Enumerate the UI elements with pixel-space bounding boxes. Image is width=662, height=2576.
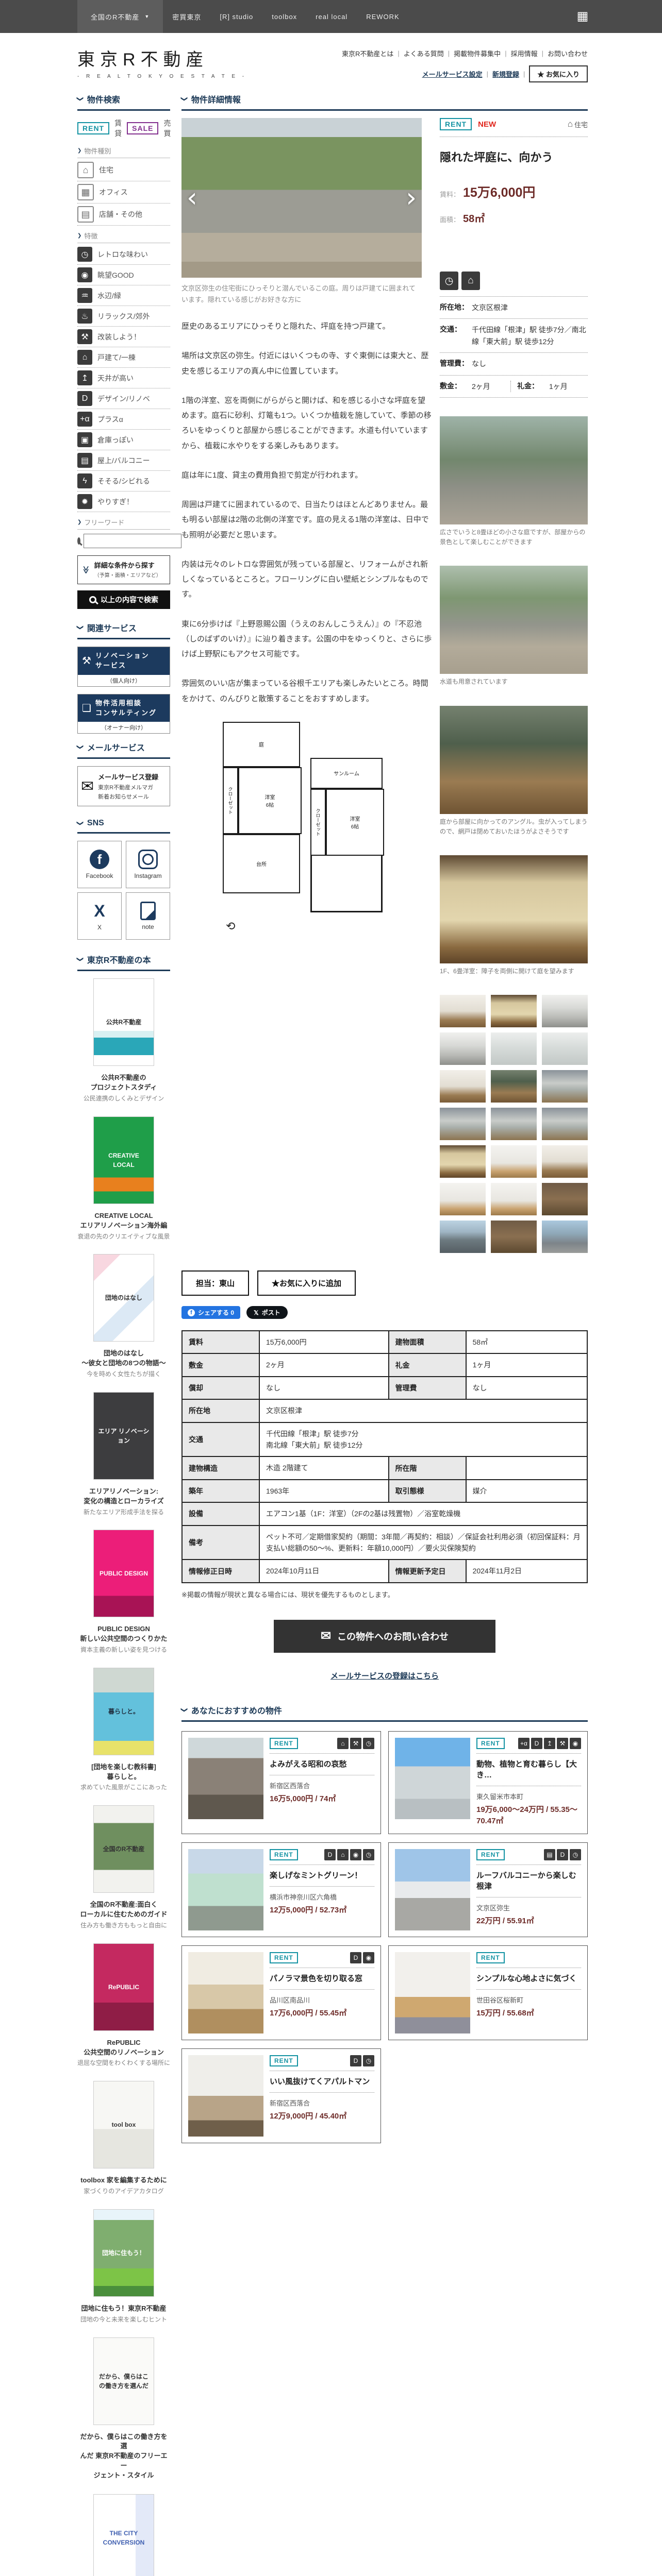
feature-icon: ⌂: [337, 1738, 349, 1749]
global-nav-items: 密買東京[R] studiotoolboxreal localREWORK: [163, 0, 408, 33]
table-header-cell: 礼金: [389, 1353, 466, 1376]
compass-icon: ⟲: [226, 920, 235, 933]
table-row: 敷金2ヶ月礼金1ヶ月: [182, 1353, 587, 1376]
book-title: ジェント・スタイル: [77, 2471, 170, 2481]
table-row: 賃料15万6,000円建物面積58㎡: [182, 1331, 587, 1353]
sidebar-item-feature[interactable]: ⌂戸建て/一棟: [77, 347, 170, 368]
table-row: 築年1963年取引態様媒介: [182, 1480, 587, 1502]
table-header-cell: 情報更新予定日: [389, 1560, 466, 1582]
book-subtitle: 住み方も働き方ももっと自由に: [77, 1921, 170, 1930]
recommended-cards: RENT⌂⚒◷よみがえる昭和の哀愁新宿区西落合16万5,000円 / 74㎡RE…: [181, 1731, 588, 2143]
feature-icon: ↥: [544, 1738, 555, 1749]
book-title: 変化の構造とローカライズ: [77, 1497, 170, 1506]
building-icon: ▤: [77, 206, 94, 223]
book-title: だから、僕らはこの働き方を選: [77, 2432, 170, 2452]
property-price: 17万6,000円 / 55.45㎡: [270, 2008, 374, 2020]
book-cover[interactable]: 全国のR不動産: [93, 1805, 154, 1893]
nav-all-r-fudosan[interactable]: 全国のR不動産 ▼: [77, 0, 163, 33]
related-services-header[interactable]: ❯ 関連サービス: [77, 621, 170, 639]
area-value: 58㎡: [463, 210, 485, 225]
book-cover[interactable]: だから、僕らはこの働き方を選んだ: [93, 2337, 154, 2425]
key-money-value: 1ヶ月: [549, 381, 568, 392]
recommended-property-card[interactable]: RENT▤D◷ルーフバルコニーから楽しむ根津文京区弥生22万円 / 55.91㎡: [388, 1842, 588, 1937]
link-separator: |: [448, 49, 450, 57]
feature-icon: ◉: [77, 267, 92, 282]
gallery-card: 1F、6畳洋室：障子を両側に開けて庭を望みます: [440, 855, 588, 976]
header-links: 東京R不動産とは|よくある質問|掲載物件募集中|採用情報|お問い合わせ: [342, 48, 588, 58]
book-cover[interactable]: tool box: [93, 2081, 154, 2168]
property-info-rows: 所在地：文京区根津交通：千代田線「根津」駅 徒歩7分／南北線「東大前」駅 徒歩1…: [440, 296, 588, 375]
description-paragraph: 内装は元々のレトロな雰囲気が残っている部屋と、リフォームがされ新しくなっていると…: [181, 557, 432, 602]
book-title: エリアリノベーション海外編: [77, 1221, 170, 1231]
nav-item[interactable]: REWORK: [357, 0, 409, 33]
sidebar-item-type[interactable]: ▦オフィス: [77, 181, 170, 204]
property-photo: [395, 1952, 470, 2033]
search-button[interactable]: 以上の内容で検索: [77, 590, 170, 609]
property-photo: [188, 1849, 263, 1930]
facebook-share-button[interactable]: f シェアする 0: [181, 1306, 240, 1319]
book-title: プロジェクトスタディ: [77, 1083, 170, 1093]
price-value: 15万6,000円: [463, 182, 535, 201]
book-title: [団地を楽しむ教科書]: [77, 1762, 170, 1772]
sidebar-item-feature[interactable]: ◷レトロな味わい: [77, 244, 170, 265]
plan-room-label: 洋室 6帖: [326, 789, 384, 856]
book-subtitle: 衰退の先のクリエイティブな風景: [77, 1232, 170, 1241]
property-title: よみがえる昭和の哀愁: [270, 1759, 374, 1775]
sidebar-item-feature[interactable]: Dデザイン/リノベ: [77, 388, 170, 409]
feature-icon: ◷: [570, 1849, 581, 1860]
house-icon: ⌂: [568, 119, 573, 129]
photo-thumbnail[interactable]: [542, 1183, 588, 1215]
property-price: 12万5,000円 / 52.73㎡: [270, 1905, 374, 1917]
sns-link-ig[interactable]: Instagram: [126, 841, 170, 888]
book-item: CREATIVE LOCALCREATIVE LOCALエリアリノベーション海外…: [77, 1116, 170, 1241]
rent-badge: RENT: [270, 1738, 298, 1749]
sidebar-item-label: 戸建て/一棟: [97, 352, 136, 363]
main-content: ❯ 物件詳細情報 ‹ › 文京区弥生の住宅街にひっそりと潜んでいるこの庭。周りは…: [181, 93, 588, 2143]
property-title: パノラマ景色を切り取る窓: [270, 1973, 374, 1990]
table-value-cell: 媒介: [466, 1480, 587, 1502]
property-price: 16万5,000円 / 74㎡: [270, 1793, 374, 1805]
nav-item[interactable]: toolbox: [262, 0, 306, 33]
rent-label: 賃貸: [114, 118, 122, 139]
property-photo: [395, 1849, 470, 1930]
sidebar-item-feature[interactable]: ♨リラックス/郊外: [77, 306, 170, 327]
table-header-cell: 償却: [182, 1377, 259, 1399]
book-cover[interactable]: 団地のはなし: [93, 1254, 154, 1342]
sidebar-item-label: レトロな味わい: [97, 249, 148, 260]
card-feature-icons: D⌂◉◷: [324, 1849, 374, 1860]
sidebar-item-feature[interactable]: ▣倉庫っぽい: [77, 430, 170, 450]
recommended-property-card[interactable]: RENTD◉パノラマ景色を切り取る窓品川区南品川17万6,000円 / 55.4…: [181, 1945, 381, 2040]
card-top: RENT: [476, 1952, 581, 1968]
property-type-header: ❯ 物件種別: [77, 146, 170, 158]
book-title: 団地に住もう！東京R不動産: [77, 2304, 170, 2314]
mail-service-link[interactable]: メールサービスの登録はこちら: [181, 1670, 588, 1681]
consulting-service-banner[interactable]: ❏ 物件活用相談 コンサルティング （オーナー向け）: [77, 694, 170, 734]
header-link[interactable]: 採用情報: [511, 48, 538, 58]
property-photo: [188, 2055, 263, 2137]
table-header-cell: 所在地: [182, 1399, 259, 1422]
recommended-property-card[interactable]: RENT+αD↥⚒◉動物、植物と育む暮らし【大き…東久留米市本町19万6,000…: [388, 1731, 588, 1834]
book-cover[interactable]: CREATIVE LOCAL: [93, 1116, 154, 1204]
x-icon: X: [90, 901, 109, 921]
search-icon: [77, 537, 80, 545]
rent-toggle[interactable]: RENT: [77, 122, 109, 134]
book-cover[interactable]: PUBLIC DESIGN: [93, 1530, 154, 1617]
deposit-label: 敷金：: [440, 381, 472, 392]
fb-icon: f: [90, 850, 109, 869]
nav-item[interactable]: [R] studio: [210, 0, 262, 33]
table-header-cell: 敷金: [182, 1353, 259, 1376]
property-detail-header: ❯ 物件詳細情報: [181, 93, 588, 111]
table-header-cell: 交通: [182, 1422, 259, 1457]
gallery-caption: 広さでいうと8畳ほどの小さな庭ですが、部屋からの景色として楽しむことができます: [440, 528, 588, 547]
sidebar-item-feature[interactable]: +αプラスα: [77, 409, 170, 430]
card-feature-icons: D◉: [350, 1952, 374, 1963]
description-paragraph: 1階の洋室、窓を両側にがらがらと開けば、和を感じる小さな坪庭を望めます。庭石に砂…: [181, 393, 432, 453]
gallery-card: 水道も用意されています: [440, 566, 588, 687]
books-header[interactable]: ❯ 東京R不動産の本: [77, 953, 170, 971]
feature-icon: ▣: [77, 432, 92, 447]
table-value-cell: なし: [466, 1377, 587, 1399]
sidebar-item-label: オフィス: [99, 187, 128, 197]
deposit-value: 2ヶ月: [472, 381, 490, 392]
site-logo-subtext: - R E A L T O K Y O E S T A T E -: [77, 74, 247, 79]
photo-thumbnail[interactable]: [491, 1108, 537, 1140]
description-paragraph: 雰囲気のいい店が集まっている谷根千エリアも楽しみたいところ。時間をかけて、のんび…: [181, 676, 432, 706]
rent-badge: RENT: [270, 1952, 298, 1963]
chevron-down-icon: ❯: [180, 96, 188, 102]
sns-label: Instagram: [134, 872, 161, 879]
table-value-cell: 2ヶ月: [259, 1353, 389, 1376]
photo-thumbnail[interactable]: [491, 1145, 537, 1178]
facebook-icon: f: [188, 1309, 195, 1316]
envelope-icon: ✉: [321, 1629, 331, 1643]
table-row: 償却なし管理費なし: [182, 1377, 587, 1399]
detailed-search-button[interactable]: ≫ 詳細な条件から探す （予算・面積・エリアなど）: [77, 555, 170, 584]
feature-icon: ◷: [363, 1849, 374, 1860]
plan-garden-label: 庭: [223, 722, 300, 767]
floor-plan-2f: サンルーム クローゼット 洋室 6帖: [310, 758, 383, 912]
sidebar-item-label: 改装しよう！: [97, 332, 141, 342]
property-title: シンプルな心地よさに気づく: [476, 1973, 581, 1990]
info-value: 千代田線「根津」駅 徒歩7分／南北線「東大前」駅 徒歩12分: [472, 324, 588, 347]
recommended-property-card[interactable]: RENTD◷いい風抜けてくアパルトマン新宿区西落合12万9,000円 / 45.…: [181, 2048, 381, 2143]
book-cover[interactable]: 団地に住もう！: [93, 2209, 154, 2297]
feature-icon: D: [350, 2055, 361, 2066]
property-location: 東久留米市本町: [476, 1791, 581, 1801]
property-photo: [188, 1952, 263, 2033]
table-row: 交通千代田線「根津」駅 徒歩7分 南北線「東大前」駅 徒歩12分: [182, 1422, 587, 1457]
gallery-photo[interactable]: [440, 416, 588, 524]
property-price: 15万円 / 55.68㎡: [476, 2008, 581, 2020]
chevron-down-icon: ❯: [180, 1707, 188, 1713]
photo-thumbnail[interactable]: [491, 1183, 537, 1215]
card-body: RENT▤D◷ルーフバルコニーから楽しむ根津文京区弥生22万円 / 55.91㎡: [476, 1849, 581, 1930]
photo-thumbnail[interactable]: [542, 1108, 588, 1140]
apps-grid-icon[interactable]: ▦: [575, 9, 590, 24]
floor-plan-1f: 庭 クローゼット 洋室 6帖 台所: [223, 722, 300, 892]
search-icon: [89, 596, 96, 603]
property-title: 隠れた坪庭に、向かう: [440, 148, 588, 165]
gallery-photo[interactable]: [440, 566, 588, 674]
freeword-input[interactable]: [84, 534, 181, 548]
photo-gallery: 広さでいうと8畳ほどの小さな庭ですが、部屋からの景色として楽しむことができます水…: [440, 416, 588, 976]
feature-icon: +α: [77, 412, 92, 427]
photo-thumbnail[interactable]: [542, 1032, 588, 1065]
photo-thumbnail[interactable]: [542, 1145, 588, 1178]
book-cover[interactable]: 公共R不動産: [93, 978, 154, 1066]
book-item: 公共R不動産公共R不動産のプロジェクトスタディ公民連携のしくみとデザイン: [77, 978, 170, 1103]
photo-thumbnail[interactable]: [440, 1183, 486, 1215]
photo-thumbnail[interactable]: [491, 1032, 537, 1065]
photo-caption: 文京区弥生の住宅街にひっそりと潜んでいるこの庭。周りは戸建てに囲まれています。隠…: [181, 283, 422, 306]
gallery-photo[interactable]: [440, 706, 588, 814]
card-body: RENTシンプルな心地よさに気づく世田谷区桜新町15万円 / 55.68㎡: [476, 1952, 581, 2033]
chevron-down-icon: ❯: [76, 957, 84, 962]
property-location: 横浜市神奈川区六角橋: [270, 1892, 374, 1902]
book-subtitle: 新たなエリア形成手法を探る: [77, 1508, 170, 1517]
plan-closet-label: クローゼット: [310, 789, 326, 856]
description-paragraph: 歴史のあるエリアにひっそりと隠れた、坪庭を持つ戸建て。: [181, 319, 432, 334]
sidebar-item-label: 倉庫っぽい: [97, 435, 134, 445]
card-body: RENT⌂⚒◷よみがえる昭和の哀愁新宿区西落合16万5,000円 / 74㎡: [270, 1738, 374, 1827]
feature-icon: D: [350, 1952, 361, 1963]
link-separator: |: [505, 49, 506, 57]
header-link[interactable]: お問い合わせ: [548, 48, 588, 58]
add-favorite-button[interactable]: ★お気に入りに追加: [257, 1270, 356, 1296]
photo-thumbnail[interactable]: [542, 995, 588, 1027]
book-title: RePUBLIC: [77, 2038, 170, 2048]
sidebar-item-label: 水辺/緑: [97, 291, 121, 301]
photo-thumbnail[interactable]: [440, 1108, 486, 1140]
photo-thumbnail[interactable]: [440, 1145, 486, 1178]
feature-icon: ⌂: [461, 272, 480, 290]
table-row: 備考ペット不可／定期借家契約（期間：3年間／再契約：相談）／保証会社利用必須（初…: [182, 1526, 587, 1560]
card-top: RENTD◉: [270, 1952, 374, 1968]
contact-button[interactable]: ✉ この物件へのお問い合わせ: [274, 1620, 495, 1653]
table-value-cell: 1ヶ月: [466, 1353, 587, 1376]
sns-link-note[interactable]: note: [126, 892, 170, 940]
agent-button[interactable]: 担当：東山: [181, 1270, 249, 1296]
nav-item[interactable]: real local: [306, 0, 357, 33]
key-money-label: 礼金：: [517, 381, 549, 392]
photo-thumbnail[interactable]: [440, 1070, 486, 1103]
book-title: 公共R不動産の: [77, 1073, 170, 1083]
drill-icon: ⚒: [82, 654, 91, 667]
sns-link-x[interactable]: XX: [77, 892, 122, 940]
sidebar-item-feature[interactable]: ♒水辺/緑: [77, 285, 170, 306]
feature-icon: ◉: [363, 1952, 374, 1963]
header-user-links: メールサービス設定|新規登録|★ お気に入り: [342, 65, 588, 82]
main-property-photo[interactable]: ‹ ›: [181, 118, 422, 278]
table-value-cell: なし: [259, 1377, 389, 1399]
sns-label: note: [142, 923, 154, 930]
sidebar-item-type[interactable]: ⌂住宅: [77, 159, 170, 181]
freeword-header: ❯ フリーワード: [77, 517, 170, 530]
chevron-right-icon: ❯: [77, 233, 81, 239]
link-separator: |: [542, 49, 543, 57]
feature-icon: ⌂: [337, 1849, 349, 1860]
photo-thumbnail[interactable]: [440, 1221, 486, 1253]
card-body: RENT+αD↥⚒◉動物、植物と育む暮らし【大き…東久留米市本町19万6,000…: [476, 1738, 581, 1827]
feature-icon: ⚒: [557, 1738, 568, 1749]
chevron-down-icon: ❯: [76, 96, 84, 102]
book-item: RePUBLICRePUBLIC公共空間のリノベーション退屈な空間をわくわくする…: [77, 1943, 170, 2067]
book-cover[interactable]: RePUBLIC: [93, 1943, 154, 2031]
property-location: 新宿区西落合: [270, 1781, 374, 1790]
sns-label: Facebook: [86, 872, 113, 879]
book-title: 全国のR不動産:面白く: [77, 1900, 170, 1910]
book-title: CREATIVE LOCAL: [77, 1211, 170, 1221]
photo-thumbnail[interactable]: [542, 1070, 588, 1103]
book-item: 全国のR不動産全国のR不動産:面白くローカルに住むためのガイド住み方も働き方もも…: [77, 1805, 170, 1929]
sidebar-item-label: 眺望GOOD: [97, 270, 134, 280]
photo-thumbnail[interactable]: [491, 995, 537, 1027]
plan-room-label: 洋室 6帖: [238, 767, 302, 834]
mail-register-banner[interactable]: ✉ メールサービス登録 東京R不動産メルマガ 新着お知らせメール: [77, 766, 170, 806]
recommended-header: ❯ あなたにおすすめの物件: [181, 1704, 588, 1722]
table-value-cell: 木造 2階建て: [259, 1456, 389, 1479]
building-icon: ▦: [77, 184, 94, 200]
sidebar-item-label: 店舗・その他: [99, 209, 142, 219]
sidebar-item-feature[interactable]: ↥天井が高い: [77, 368, 170, 388]
next-photo-arrow[interactable]: ›: [406, 184, 417, 211]
book-item: 団地のはなし団地のはなし〜彼女と団地の8つの物語〜今を時めく女性たちが描く: [77, 1254, 170, 1378]
feature-icon: ⌂: [77, 350, 92, 365]
property-title: いい風抜けてくアパルトマン: [270, 2076, 374, 2093]
book-list: 公共R不動産公共R不動産のプロジェクトスタディ公民連携のしくみとデザインCREA…: [77, 978, 170, 2576]
table-value-cell: [466, 1456, 587, 1479]
book-title: 暮らしと。: [77, 1772, 170, 1782]
sidebar-item-feature[interactable]: ϟそそる/シビれる: [77, 471, 170, 492]
photo-thumbnail[interactable]: [440, 995, 486, 1027]
recommended-property-card[interactable]: RENTD⌂◉◷楽しげなミントグリーン！横浜市神奈川区六角橋12万5,000円 …: [181, 1842, 381, 1937]
x-post-button[interactable]: 𝕏 ポスト: [246, 1306, 288, 1319]
gallery-photo[interactable]: [440, 855, 588, 963]
prev-photo-arrow[interactable]: ‹: [187, 184, 197, 211]
feature-icon: D: [324, 1849, 336, 1860]
feature-icon: ◷: [363, 1738, 374, 1749]
rent-badge: RENT: [476, 1952, 505, 1963]
book-cover[interactable]: 暮らしと。: [93, 1668, 154, 1755]
recommended-property-card[interactable]: RENTシンプルな心地よさに気づく世田谷区桜新町15万円 / 55.68㎡: [388, 1945, 588, 2040]
sale-toggle[interactable]: SALE: [127, 122, 158, 134]
book-cover[interactable]: THE CITY CONVERSION: [93, 2494, 154, 2576]
book-item: エリア リノベーションエリアリノベーション:変化の構造とローカライズ新たなエリア…: [77, 1392, 170, 1516]
header-link[interactable]: メールサービス設定: [422, 69, 483, 79]
table-header-cell: 設備: [182, 1502, 259, 1525]
sidebar-search-header[interactable]: ❯ 物件検索: [77, 93, 170, 111]
thumbnail-grid: [440, 995, 588, 1253]
card-body: RENTD⌂◉◷楽しげなミントグリーン！横浜市神奈川区六角橋12万5,000円 …: [270, 1849, 374, 1930]
header-link[interactable]: よくある質問: [404, 48, 444, 58]
property-photo: [188, 1738, 263, 1819]
card-body: RENTD◉パノラマ景色を切り取る窓品川区南品川17万6,000円 / 55.4…: [270, 1952, 374, 2033]
book-title: んだ 東京R不動産のフリーエー: [77, 2451, 170, 2471]
mail-service-header[interactable]: ❯ メールサービス: [77, 741, 170, 759]
plan-closet-label: クローゼット: [223, 767, 238, 834]
header-link[interactable]: 東京R不動産とは: [342, 48, 393, 58]
book-subtitle: 今を時めく女性たちが描く: [77, 1370, 170, 1379]
recommended-property-card[interactable]: RENT⌂⚒◷よみがえる昭和の哀愁新宿区西落合16万5,000円 / 74㎡: [181, 1731, 381, 1834]
card-feature-icons: ▤D◷: [544, 1849, 581, 1860]
property-photo: [395, 1738, 470, 1819]
ig-icon: [138, 850, 158, 869]
site-logo[interactable]: 東京R不動産 - R E A L T O K Y O E S T A T E -: [77, 45, 247, 79]
table-value-cell: 1963年: [259, 1480, 389, 1502]
info-value: 文京区根津: [472, 302, 508, 313]
chevron-down-icon: ❯: [76, 625, 84, 631]
info-label: 交通：: [440, 324, 472, 347]
new-tag: NEW: [478, 120, 496, 129]
sns-header[interactable]: ❯ SNS: [77, 819, 170, 834]
feature-icon: ◉: [350, 1849, 361, 1860]
property-location: 世田谷区桜新町: [476, 1995, 581, 2005]
feature-icon: ♒: [77, 288, 92, 303]
book-item: PUBLIC DESIGNPUBLIC DESIGN新しい公共空間のつくりかた資…: [77, 1530, 170, 1654]
favorites-button[interactable]: ★ お気に入り: [529, 65, 588, 82]
renovation-service-banner[interactable]: ⚒ リノベーション サービス （個人向け）: [77, 647, 170, 687]
book-subtitle: 求めていた風景がここにあった: [77, 1783, 170, 1792]
sidebar-item-label: 屋上/バルコニー: [97, 455, 150, 466]
site-logo-text: 東京R不動産: [77, 45, 247, 71]
feature-icon: ✹: [77, 494, 92, 509]
info-label: 所在地：: [440, 302, 472, 313]
card-feature-icons: ⌂⚒◷: [337, 1738, 374, 1749]
table-header-cell: 建物面積: [389, 1331, 466, 1353]
sidebar-item-feature[interactable]: ◉眺望GOOD: [77, 265, 170, 285]
property-price: 22万円 / 55.91㎡: [476, 1916, 581, 1927]
sidebar-item-feature[interactable]: ▤屋上/バルコニー: [77, 450, 170, 471]
photo-thumbnail[interactable]: [491, 1221, 537, 1253]
info-value: なし: [472, 358, 486, 369]
feature-icon: ♨: [77, 309, 92, 324]
gallery-caption: 1F、6畳洋室：障子を両側に開けて庭を望みます: [440, 967, 588, 976]
property-type-list: ⌂住宅▦オフィス▤店舗・その他: [77, 159, 170, 226]
table-header-cell: 備考: [182, 1526, 259, 1560]
card-top: RENTD◷: [270, 2055, 374, 2071]
photo-thumbnail[interactable]: [491, 1070, 537, 1103]
table-row: 建物構造木造 2階建て所在階: [182, 1456, 587, 1479]
book-title: ローカルに住むためのガイド: [77, 1910, 170, 1920]
card-feature-icons: D◷: [350, 2055, 374, 2066]
book-title: エリアリノベーション:: [77, 1487, 170, 1497]
sidebar-item-label: プラスα: [97, 414, 123, 425]
book-cover[interactable]: エリア リノベーション: [93, 1392, 154, 1480]
sns-link-fb[interactable]: fFacebook: [77, 841, 122, 888]
header-link[interactable]: 新規登録: [492, 69, 519, 79]
building-icon: ⌂: [77, 162, 94, 178]
rent-badge: RENT: [476, 1849, 505, 1860]
photo-thumbnail[interactable]: [440, 1032, 486, 1065]
table-value-cell: 2024年10月11日: [259, 1560, 389, 1582]
book-title: 新しい公共空間のつくりかた: [77, 1634, 170, 1644]
chevron-down-icon: ❯: [76, 744, 84, 750]
book-subtitle: 公民連携のしくみとデザイン: [77, 1094, 170, 1103]
nav-item[interactable]: 密買東京: [163, 0, 210, 33]
book-title: 団地のはなし: [77, 1349, 170, 1359]
book-item: だから、僕らはこの働き方を選んだだから、僕らはこの働き方を選んだ 東京R不動産の…: [77, 2337, 170, 2481]
photo-thumbnail[interactable]: [542, 1221, 588, 1253]
sidebar-item-type[interactable]: ▤店舗・その他: [77, 204, 170, 226]
sale-label: 売買: [163, 118, 171, 139]
sidebar-item-feature[interactable]: ⚒改装しよう！: [77, 327, 170, 347]
book-item: tool boxtoolbox 家を編集するために家づくりのアイデアカタログ: [77, 2081, 170, 2196]
header-link[interactable]: 掲載物件募集中: [454, 48, 501, 58]
sidebar-item-feature[interactable]: ✹やりすぎ！: [77, 492, 170, 512]
